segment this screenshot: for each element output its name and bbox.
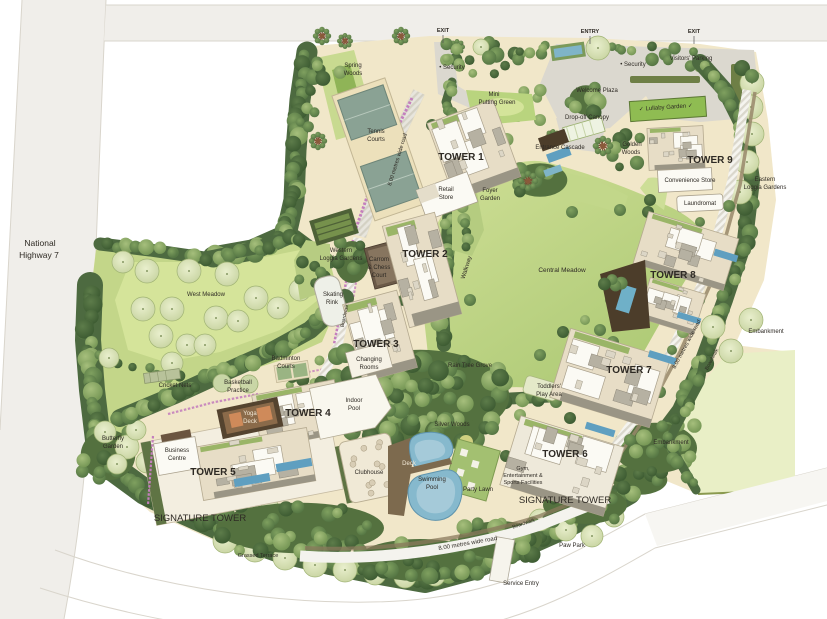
svg-text:Deck: Deck — [402, 461, 417, 467]
svg-text:• Security: • Security — [620, 62, 645, 68]
svg-text:Entertainment &: Entertainment & — [503, 473, 543, 479]
svg-text:Deck: Deck — [243, 419, 258, 425]
svg-text:Carrom: Carrom — [369, 257, 389, 263]
svg-text:Service Entry: Service Entry — [503, 581, 539, 587]
svg-text:TOWER 1: TOWER 1 — [438, 152, 484, 163]
svg-text:Loggia Gardens: Loggia Gardens — [744, 185, 787, 191]
svg-text:TOWER 6: TOWER 6 — [542, 449, 588, 460]
svg-text:Paw Park: Paw Park — [559, 543, 586, 549]
svg-text:Skating: Skating — [323, 292, 343, 298]
svg-text:Welcome Plaza: Welcome Plaza — [576, 88, 618, 94]
svg-text:Retail: Retail — [438, 187, 453, 193]
svg-text:Pool: Pool — [348, 406, 360, 412]
svg-text:Swimming: Swimming — [418, 477, 446, 483]
svg-text:Mini: Mini — [488, 92, 499, 98]
svg-text:Practice: Practice — [227, 388, 249, 394]
svg-text:Woods: Woods — [344, 71, 363, 77]
svg-text:Spring: Spring — [344, 63, 361, 69]
svg-text:Foyer: Foyer — [482, 188, 497, 194]
svg-text:Central Meadow: Central Meadow — [538, 267, 586, 274]
svg-text:Eastern: Eastern — [755, 177, 776, 183]
svg-text:TOWER 7: TOWER 7 — [606, 365, 652, 376]
svg-text:Business: Business — [165, 448, 189, 454]
svg-text:Party Lawn: Party Lawn — [463, 487, 493, 493]
svg-text:Cricket Nets: Cricket Nets — [159, 383, 192, 389]
svg-text:TOWER 4: TOWER 4 — [285, 408, 331, 419]
svg-text:Western: Western — [330, 248, 352, 254]
svg-text:Embankment: Embankment — [748, 329, 784, 335]
svg-text:ENTRY: ENTRY — [581, 29, 600, 35]
svg-text:Court: Court — [372, 273, 387, 279]
svg-text:Clubhouse: Clubhouse — [355, 470, 384, 476]
svg-text:Embankment: Embankment — [653, 440, 689, 446]
svg-text:TOWER 2: TOWER 2 — [402, 249, 448, 260]
svg-text:Indoor: Indoor — [345, 398, 362, 404]
svg-text:Changing: Changing — [356, 357, 382, 363]
svg-text:Golden: Golden — [622, 142, 641, 148]
svg-text:Gym,: Gym, — [516, 466, 530, 472]
svg-text:Garden: Garden — [103, 444, 123, 450]
svg-text:Rooms: Rooms — [359, 365, 378, 371]
svg-text:Centre: Centre — [168, 456, 187, 462]
svg-text:EXIT: EXIT — [688, 29, 701, 35]
svg-text:Woods: Woods — [622, 150, 641, 156]
svg-text:TOWER 8: TOWER 8 — [650, 270, 696, 281]
svg-text:Silver Woods: Silver Woods — [434, 422, 469, 428]
svg-text:SIGNATURE TOWER: SIGNATURE TOWER — [154, 513, 247, 524]
svg-text:Loggia Gardens: Loggia Gardens — [320, 256, 363, 262]
svg-text:& Chess: & Chess — [368, 265, 391, 271]
svg-text:• Security: • Security — [439, 65, 464, 71]
svg-text:Butterfly: Butterfly — [102, 436, 124, 442]
svg-text:Visitors' Parking: Visitors' Parking — [670, 56, 713, 62]
svg-text:West Meadow: West Meadow — [187, 292, 226, 298]
svg-text:Play Area: Play Area — [536, 392, 562, 398]
svg-text:Yoga: Yoga — [243, 411, 257, 417]
svg-text:Putting Green: Putting Green — [478, 100, 515, 106]
svg-text:Tennis: Tennis — [367, 129, 384, 135]
svg-text:SIGNATURE TOWER: SIGNATURE TOWER — [519, 495, 612, 506]
svg-text:Rain Tree Grove: Rain Tree Grove — [448, 363, 493, 369]
svg-text:TOWER 9: TOWER 9 — [687, 155, 733, 166]
svg-text:Convenience Store: Convenience Store — [664, 178, 716, 184]
svg-text:Basketball: Basketball — [224, 380, 252, 386]
svg-text:Sports Facilities: Sports Facilities — [504, 480, 543, 486]
svg-text:Store: Store — [439, 195, 454, 201]
svg-text:National: National — [24, 238, 55, 248]
svg-text:Drop-off Canopy: Drop-off Canopy — [565, 115, 609, 121]
svg-text:TOWER 5: TOWER 5 — [190, 467, 236, 478]
svg-text:Toddlers': Toddlers' — [537, 384, 561, 390]
svg-text:Rink: Rink — [326, 300, 339, 306]
svg-text:Courts: Courts — [277, 364, 295, 370]
svg-text:Pool: Pool — [426, 485, 438, 491]
svg-text:Courts: Courts — [367, 137, 385, 143]
svg-text:Garden: Garden — [480, 196, 500, 202]
svg-text:TOWER 3: TOWER 3 — [353, 339, 399, 350]
svg-text:Highway 7: Highway 7 — [19, 250, 59, 260]
svg-text:Laundromat: Laundromat — [684, 201, 716, 207]
svg-text:EXIT: EXIT — [437, 28, 450, 34]
svg-text:Entrance Cascade: Entrance Cascade — [535, 145, 585, 151]
svg-text:Grassed Terrace: Grassed Terrace — [238, 553, 279, 559]
svg-text:Badminton: Badminton — [272, 356, 301, 362]
